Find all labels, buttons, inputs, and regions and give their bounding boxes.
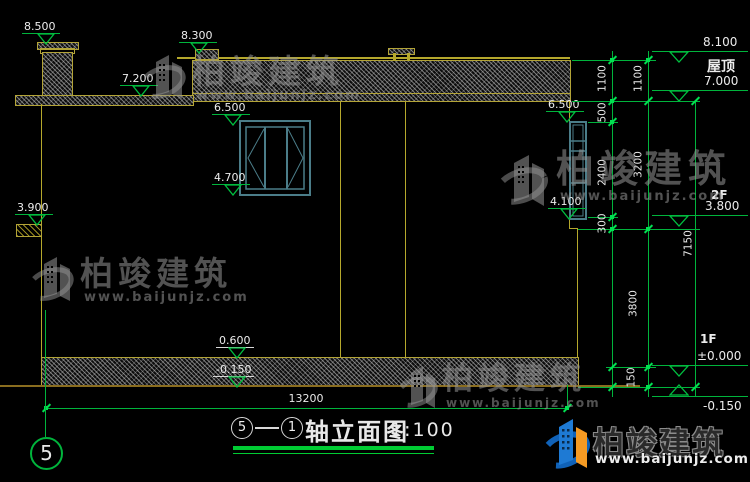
elevation-triangle-icon (224, 114, 242, 126)
level-8100-line (652, 51, 748, 52)
title-underline-thin (233, 453, 434, 454)
dim-dot (646, 365, 650, 369)
drawing-scale: 1:100 (390, 419, 455, 441)
elevation-triangle-icon (669, 51, 689, 63)
window-center (239, 120, 312, 197)
level-m0150-center-label: -0.150 (216, 364, 251, 375)
elevation-triangle-icon (224, 184, 242, 196)
dim-dot (646, 227, 650, 231)
elevation-triangle-icon (558, 111, 576, 123)
watermark-logo-icon (394, 362, 442, 410)
elevation-triangle-icon (228, 376, 246, 388)
dim-300: 300 (597, 201, 610, 247)
watermark-brand: 柏竣建筑 (556, 150, 732, 188)
dim-dot (610, 58, 614, 62)
dim-dot (646, 385, 650, 389)
dim-7150: 7150 (683, 221, 696, 267)
level-0600-label: 0.600 (219, 335, 251, 346)
floor1-text: 1F (700, 332, 717, 346)
axis-bubble-5: 5 (30, 437, 63, 470)
brand-logo-icon (540, 415, 594, 471)
dim-dot (646, 58, 650, 62)
chimney-body (42, 52, 73, 98)
dim-500: 500 (597, 90, 610, 136)
dim-3800: 3800 (628, 281, 641, 327)
level-0000-line (652, 365, 748, 366)
watermark-brand: 柏竣建筑 (80, 257, 232, 290)
dim-dot (610, 227, 614, 231)
level-7000-line (652, 90, 748, 91)
elevation-triangle-icon (28, 214, 46, 226)
watermark-logo-icon (494, 150, 552, 208)
dim-13200: 13200 (280, 392, 332, 405)
title-axis-bubble-a: 5 (231, 417, 253, 439)
wall-right-lower (577, 228, 578, 357)
level-m0150-right-label: -0.150 (703, 401, 742, 412)
dim-dot (610, 215, 614, 219)
dim-150: 150 (626, 355, 639, 401)
level-3900-label: 3.900 (17, 202, 49, 213)
level-8500-label: 8.500 (24, 21, 56, 32)
level-3800-line (652, 215, 748, 216)
dim-dot (610, 120, 614, 124)
watermark-url: www.baijunjz.com (196, 89, 361, 102)
elevation-triangle-icon (560, 208, 578, 220)
roof-text: 屋顶 (707, 56, 735, 76)
elevation-triangle-icon (37, 33, 55, 45)
watermark-brand: 柏竣建筑 (192, 55, 344, 88)
roof-vent-leg (393, 53, 396, 61)
level-7000-label: 7.000 (704, 76, 738, 87)
level-0000-label: ±0.000 (697, 351, 741, 362)
title-axis-bubble-b: 1 (281, 417, 303, 439)
watermark-url: www.baijunjz.com (446, 397, 601, 409)
level-6500-mid-label: 6.500 (214, 102, 246, 113)
watermark-url: www.baijunjz.com (560, 190, 725, 203)
brand-logo-url: www.baijunjz.com (595, 451, 749, 467)
level-m0150-right-line (652, 396, 748, 397)
elevation-triangle-icon (669, 365, 689, 377)
dim-1100-outer: 1100 (633, 56, 646, 102)
roof-vent-leg (407, 53, 410, 61)
wall-mid-b (405, 101, 406, 357)
level-4700-label: 4.700 (214, 172, 246, 183)
title-dash (255, 427, 279, 429)
axis-line-5 (45, 310, 46, 437)
dim-line-middle (648, 51, 649, 397)
level-8300-label: 8.300 (181, 30, 213, 41)
watermark-logo-icon (26, 252, 78, 304)
cad-elevation-drawing: 8.500 8.300 7.200 6.500 4.700 3.900 6.50… (0, 0, 750, 482)
watermark-logo-icon (138, 50, 190, 102)
watermark-url: www.baijunjz.com (84, 291, 249, 304)
ext-line (578, 387, 700, 388)
wall-mid-a (340, 101, 341, 357)
elevation-triangle-icon (228, 347, 246, 359)
level-8100-label: 8.100 (703, 37, 737, 48)
watermark-brand: 柏竣建筑 (442, 364, 586, 395)
dim-dot (610, 99, 614, 103)
title-underline-thick (233, 446, 434, 450)
elevation-triangle-up-icon (669, 384, 689, 396)
